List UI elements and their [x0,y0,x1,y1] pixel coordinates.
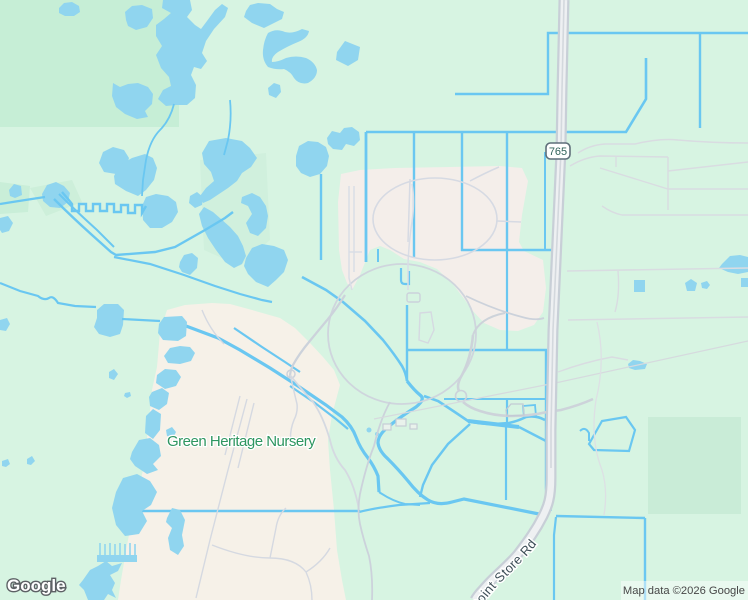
svg-text:Map data ©2026 Google: Map data ©2026 Google [623,585,745,597]
svg-text:Green Heritage Nursery: Green Heritage Nursery [167,433,316,450]
svg-text:Google: Google [7,576,66,595]
svg-text:765: 765 [549,146,567,158]
